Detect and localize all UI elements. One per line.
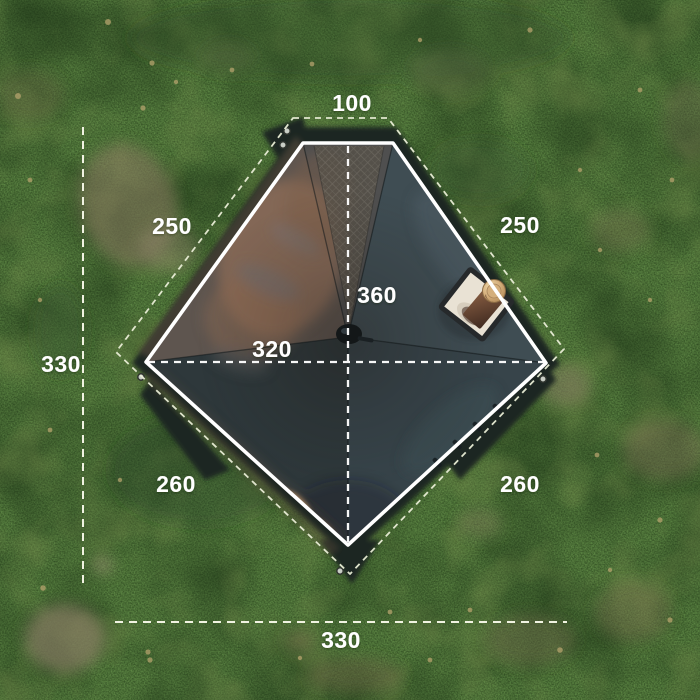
dim-upper-right-label: 250: [500, 212, 540, 238]
dim-bottom-total-label: 330: [321, 627, 361, 653]
dim-top-width-label: 100: [332, 90, 372, 116]
dim-lower-right-label: 260: [500, 471, 540, 497]
dim-lower-left-label: 260: [156, 471, 196, 497]
dim-center-depth-label: 360: [357, 282, 397, 308]
dim-center-width-label: 320: [252, 336, 292, 362]
dim-left-total-label: 330: [41, 351, 81, 377]
tent-dimension-diagram: 100 250 250 330 360 320 260 260 330: [0, 0, 700, 700]
dim-upper-left-label: 250: [152, 213, 192, 239]
